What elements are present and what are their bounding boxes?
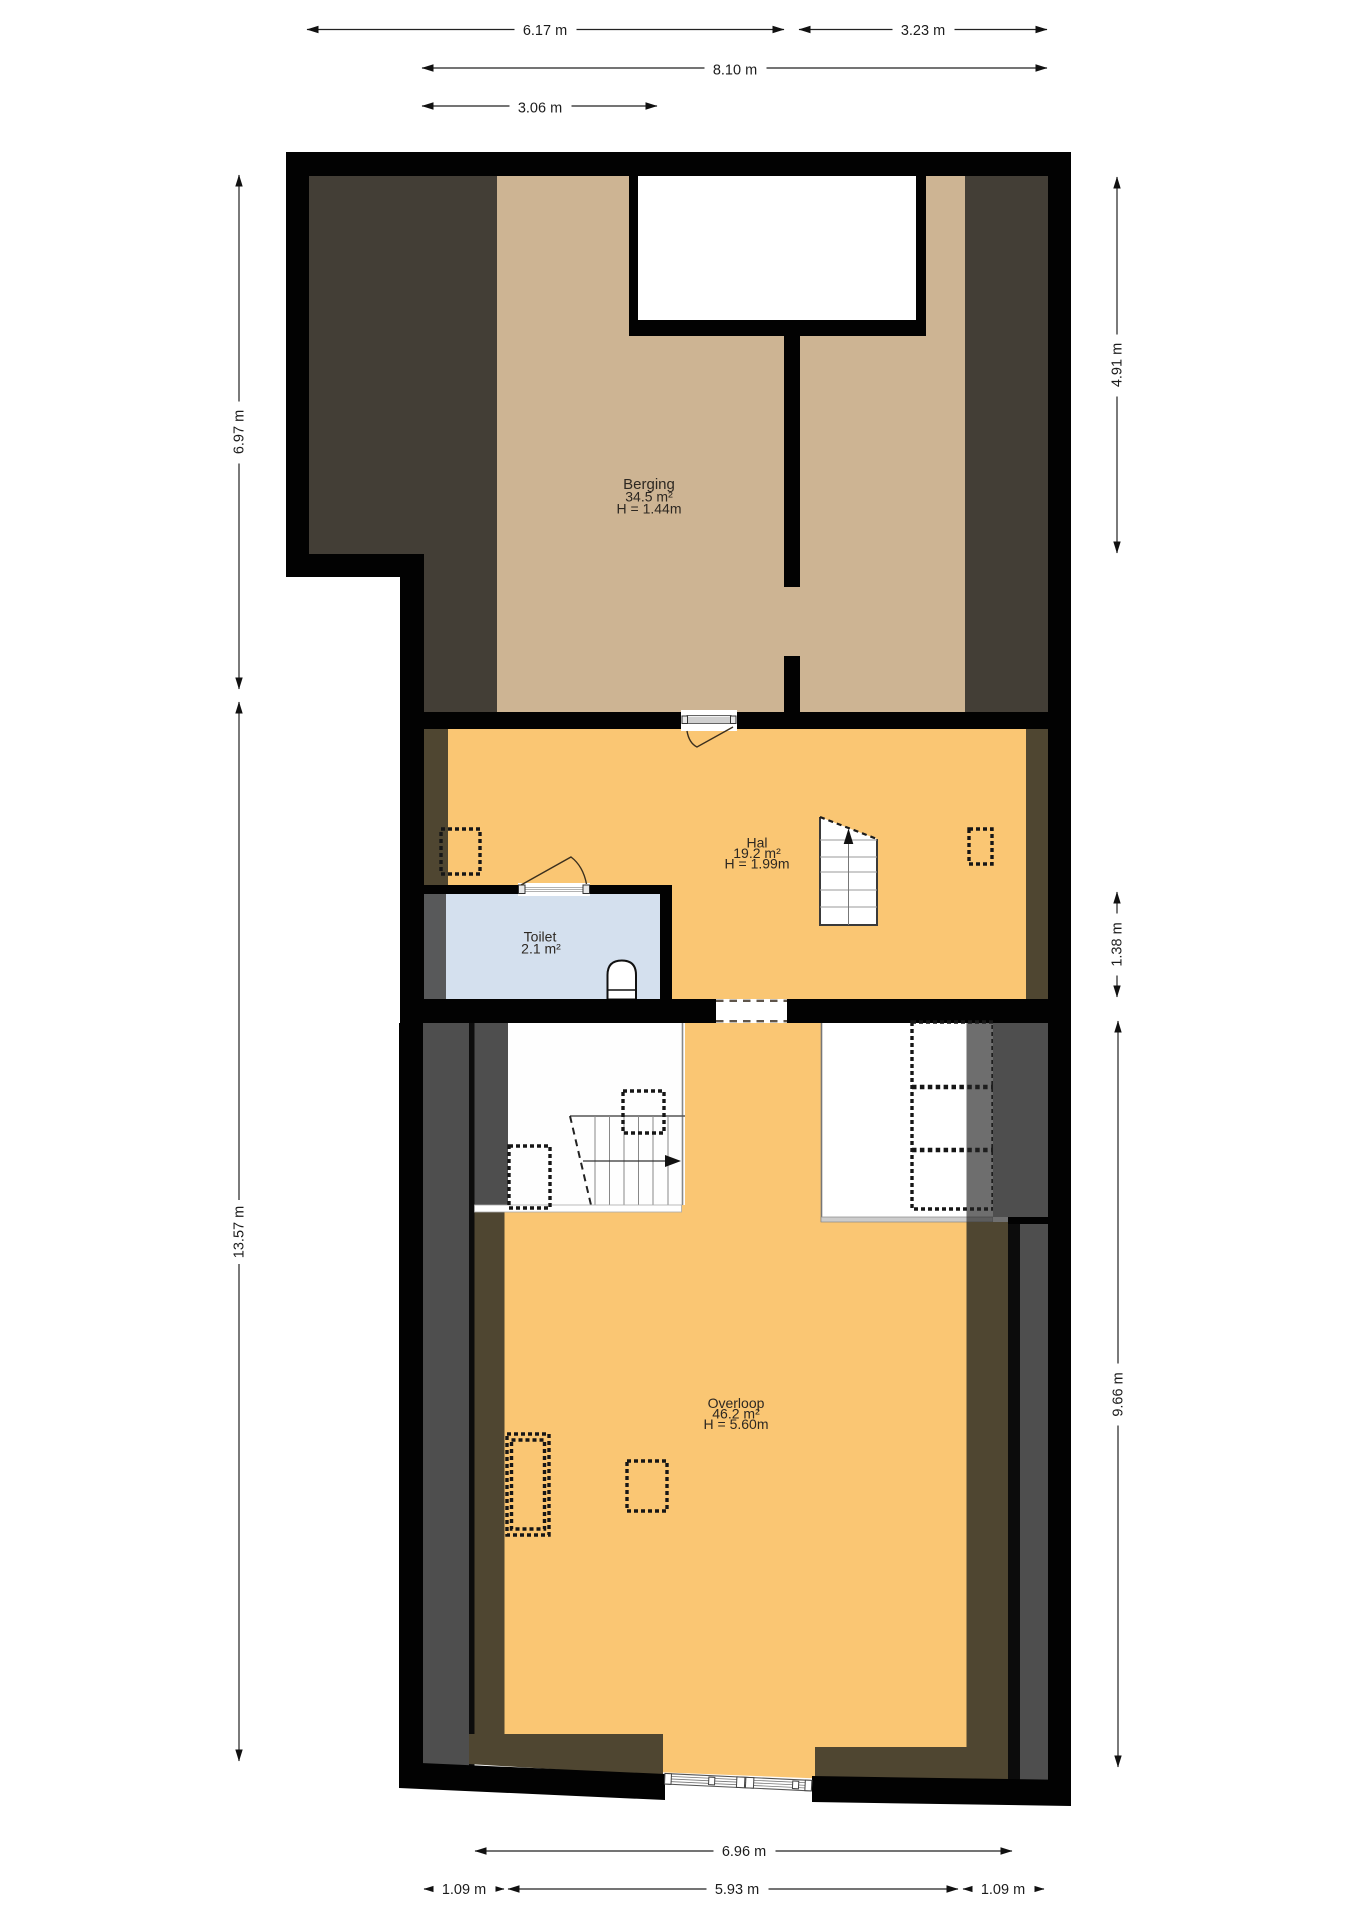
svg-text:6.17 m: 6.17 m [523,23,567,39]
svg-text:3.23 m: 3.23 m [901,23,945,39]
svg-text:5.93 m: 5.93 m [715,1882,759,1898]
svg-text:1.09 m: 1.09 m [442,1882,486,1898]
svg-text:H = 1.44m: H = 1.44m [617,501,682,517]
svg-text:1.38 m: 1.38 m [1110,922,1126,966]
svg-text:4.91 m: 4.91 m [1110,343,1126,387]
svg-text:3.06 m: 3.06 m [518,101,562,117]
svg-text:2.1 m²: 2.1 m² [521,941,561,957]
svg-text:13.57 m: 13.57 m [232,1206,248,1258]
svg-text:9.66 m: 9.66 m [1111,1372,1127,1416]
svg-text:H = 1.99m: H = 1.99m [725,856,790,872]
svg-text:6.97 m: 6.97 m [232,410,248,454]
svg-text:6.96 m: 6.96 m [722,1844,766,1860]
svg-text:H = 5.60m: H = 5.60m [704,1416,769,1432]
svg-text:1.09 m: 1.09 m [981,1882,1025,1898]
svg-text:8.10 m: 8.10 m [713,63,757,79]
